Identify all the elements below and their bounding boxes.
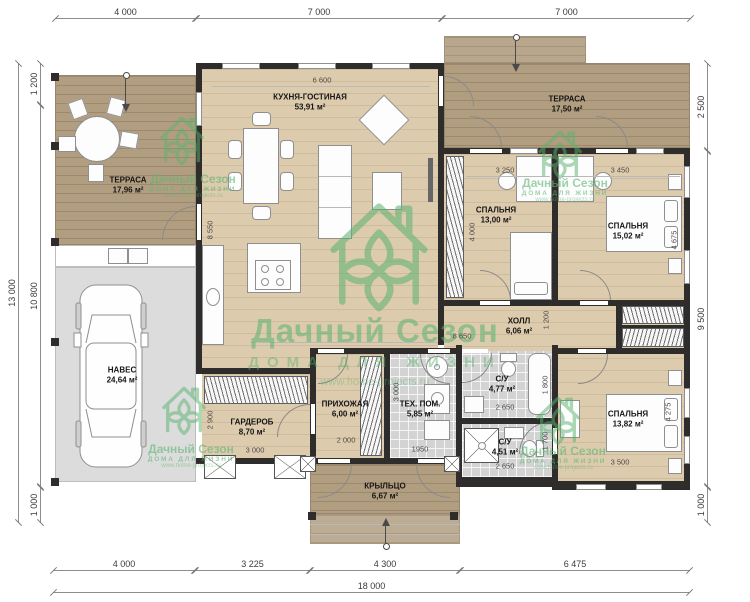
door-opening	[318, 349, 344, 353]
tv	[428, 158, 433, 202]
window	[684, 250, 690, 284]
entry-arrow-icon	[512, 64, 520, 72]
dim-line	[562, 176, 680, 177]
room-area: 15,02 м²	[608, 232, 648, 242]
dim-bottom-total: 18 000	[53, 592, 690, 593]
tech-cabinet	[424, 420, 450, 440]
window	[372, 63, 410, 69]
window	[684, 436, 690, 464]
desk	[558, 156, 594, 202]
entry-marker	[383, 543, 390, 550]
dim-bottom-2: 3 225	[195, 570, 310, 571]
pillow	[664, 425, 678, 448]
room-area: 5,85 м²	[400, 410, 441, 420]
dim-kitchen-left: 8 550	[206, 221, 215, 240]
door-opening	[480, 301, 510, 305]
terrace-chair	[58, 136, 76, 152]
room-name: КРЫЛЬЦО	[364, 482, 405, 492]
desk-chair	[594, 172, 612, 190]
room-area: 13,82 м²	[608, 420, 648, 430]
terrace-chair	[119, 131, 140, 150]
nightstand	[668, 258, 682, 274]
dim-bed2-h: 4 675	[670, 231, 679, 250]
room-label-porch: КРЫЛЬЦО 6,67 м²	[364, 482, 405, 503]
door-opening	[580, 301, 608, 305]
room-name: ПРИХОЖАЯ	[322, 400, 369, 410]
bench	[128, 248, 148, 264]
room-label-carport: НАВЕС 24,64 м²	[107, 366, 138, 387]
room-name: ТЕХ. ПОМ.	[400, 400, 441, 410]
wall	[456, 477, 552, 487]
stove	[255, 260, 291, 290]
column	[444, 456, 460, 472]
dim-right-1: 2 500	[707, 63, 708, 151]
entry-arrow-line	[385, 525, 386, 543]
dim-hall-h: 1 200	[542, 311, 551, 330]
dim-bed2-w: 3 450	[611, 166, 630, 175]
room-name: КУХНЯ-ГОСТИНАЯ	[273, 93, 347, 103]
hall-closet	[622, 328, 684, 347]
wardrobe-rack	[204, 376, 308, 404]
sofa-cushion-line	[319, 176, 351, 177]
nightstand	[668, 458, 682, 474]
dim-bottom-1: 4 000	[53, 570, 195, 571]
window	[222, 63, 260, 69]
pillow	[514, 282, 548, 295]
dim-wc1-w: 2 650	[496, 403, 515, 412]
room-label-hallway: ПРИХОЖАЯ 6,00 м²	[322, 400, 369, 421]
dim-bed1-h: 4 000	[468, 223, 477, 242]
sofa	[318, 145, 352, 239]
room-name: С/У	[492, 438, 518, 448]
floor-plan-canvas: ТЕРРАСА 17,96 м² КУХНЯ-ГОСТИНАЯ 53,91 м²…	[0, 0, 750, 602]
terrace-chair	[88, 164, 104, 182]
dim-ward-w: 3 000	[246, 446, 265, 455]
dim-bed1-w: 3 250	[496, 166, 515, 175]
entry-arrow-icon	[122, 104, 130, 112]
dresser	[560, 400, 580, 438]
window	[684, 166, 690, 198]
dim-hall-w: 8 650	[453, 332, 472, 341]
burner	[261, 278, 269, 286]
door-opening	[578, 349, 606, 353]
dim-left-3: 1 000	[40, 487, 41, 523]
room-label-bathroom1: С/У 4,77 м²	[489, 375, 515, 396]
pillow	[664, 200, 678, 222]
post	[51, 238, 59, 246]
room-area: 53,91 м²	[273, 103, 347, 113]
dim-entry-w: 2 000	[337, 436, 356, 445]
room-name: СПАЛЬНЯ	[476, 206, 516, 216]
room-label-hall: ХОЛЛ 6,06 м²	[506, 317, 532, 338]
room-label-kitchen: КУХНЯ-ГОСТИНАЯ 53,91 м²	[273, 93, 347, 114]
low-window	[204, 455, 236, 479]
room-name: ТЕРРАСА	[109, 176, 146, 186]
room-label-bedroom2: СПАЛЬНЯ 15,02 м²	[608, 222, 648, 243]
door-opening	[470, 149, 502, 153]
dim-right-2: 9 500	[707, 151, 708, 487]
door-opening	[462, 349, 488, 353]
window	[636, 148, 664, 154]
dim-line	[250, 342, 450, 343]
room-name: СПАЛЬНЯ	[608, 410, 648, 420]
wall	[384, 354, 390, 464]
door-opening	[428, 349, 450, 353]
dim-line	[466, 176, 550, 177]
desk-chair	[498, 172, 516, 190]
room-label-bathroom2: С/У 4,51 м²	[492, 438, 518, 459]
dim-left-total: 13 000	[18, 63, 19, 523]
door-opening	[311, 404, 315, 434]
wall	[552, 348, 690, 354]
room-area: 4,77 м²	[489, 385, 515, 395]
dining-table	[243, 128, 279, 204]
post	[308, 512, 316, 520]
dim-wc2-h: 1 700	[541, 432, 550, 451]
wall	[552, 345, 558, 490]
burner	[276, 265, 284, 273]
room-label-bedroom3: СПАЛЬНЯ 13,82 м²	[608, 410, 648, 431]
room-label-wardrobe: ГАРДЕРОБ 8,70 м²	[231, 418, 274, 439]
window	[510, 148, 538, 154]
kitchen-sink	[206, 288, 220, 306]
room-label-terrace-left: ТЕРРАСА 17,96 м²	[109, 176, 146, 197]
column	[300, 456, 316, 472]
dining-chair	[252, 206, 271, 220]
dining-chair	[252, 112, 271, 126]
dim-left-1: 1 200	[40, 63, 41, 105]
dim-top-1: 4 000	[55, 18, 196, 19]
room-area: 6,00 м²	[322, 410, 369, 420]
room-name: С/У	[489, 375, 515, 385]
burner	[276, 278, 284, 286]
dim-line	[212, 86, 430, 87]
dim-bed3-h: 4 275	[664, 403, 673, 422]
desk	[516, 156, 552, 202]
nightstand	[668, 370, 682, 386]
hall-closet	[622, 306, 684, 324]
dim-wc1-h: 1 800	[541, 376, 550, 395]
room-name: ТЕРРАСА	[548, 95, 585, 105]
room-area: 6,67 м²	[364, 492, 405, 502]
post	[51, 478, 59, 486]
dim-ward-h: 2 900	[206, 411, 215, 430]
dim-tech-w: 1950	[412, 445, 429, 454]
dim-bed3-w: 3 500	[611, 458, 630, 467]
entry-arrow-line	[515, 41, 516, 65]
entry-marker	[123, 72, 130, 79]
window	[196, 92, 202, 126]
dim-top-2: 7 000	[196, 18, 442, 19]
room-name: СПАЛЬНЯ	[608, 222, 648, 232]
room-name: ХОЛЛ	[506, 317, 532, 327]
sofa-cushion-line	[319, 207, 351, 208]
dining-chair	[228, 172, 242, 191]
room-label-terrace-top: ТЕРРАСА 17,50 м²	[548, 95, 585, 116]
room-area: 17,96 м²	[109, 186, 146, 196]
wall	[196, 368, 316, 374]
dim-left-2: 10 800	[40, 105, 41, 487]
dining-chair	[280, 172, 294, 191]
dim-wc2-w: 2 650	[496, 462, 515, 471]
window	[298, 63, 336, 69]
wall	[552, 481, 690, 490]
coffee-table	[372, 172, 402, 210]
window	[636, 484, 662, 490]
room-label-bedroom1: СПАЛЬНЯ 13,00 м²	[476, 206, 516, 227]
door-opening	[553, 428, 557, 454]
room-name: НАВЕС	[107, 366, 138, 376]
burner	[261, 265, 269, 273]
room-area: 8,70 м²	[231, 428, 274, 438]
entry-arrow-line	[125, 79, 126, 105]
entry-arrow-icon	[382, 518, 390, 526]
door-opening	[596, 149, 628, 153]
dim-bottom-3: 4 300	[310, 570, 460, 571]
door-opening	[197, 204, 201, 240]
dining-chair	[228, 140, 242, 159]
dim-bottom-4: 6 475	[460, 570, 690, 571]
post	[51, 73, 59, 81]
dim-right-3: 1 000	[707, 487, 708, 523]
dining-chair	[280, 140, 294, 159]
sink	[464, 396, 484, 413]
door-opening	[439, 76, 443, 106]
room-name: ГАРДЕРОБ	[231, 418, 274, 428]
post	[51, 142, 59, 150]
window	[576, 484, 606, 490]
window	[684, 388, 690, 418]
bench	[108, 248, 128, 264]
room-area: 4,51 м²	[492, 448, 518, 458]
room-area: 6,06 м²	[506, 327, 532, 337]
entry-marker	[513, 34, 520, 41]
terrace-table	[74, 116, 120, 162]
room-area: 24,64 м²	[107, 376, 138, 386]
room-area: 17,50 м²	[548, 105, 585, 115]
dim-top-3: 7 000	[442, 18, 691, 19]
dim-tech-h: 3 000	[392, 383, 401, 402]
post	[51, 338, 59, 346]
wall	[456, 418, 552, 424]
wardrobe-closet	[446, 156, 464, 298]
dim-kitchen-top: 6 600	[313, 76, 332, 85]
wall	[552, 148, 558, 306]
room-label-tech: ТЕХ. ПОМ. 5,85 м²	[400, 400, 441, 421]
wall	[616, 325, 684, 328]
shower-drain	[478, 442, 486, 450]
post	[450, 512, 458, 520]
room-area: 13,00 м²	[476, 216, 516, 226]
door-opening	[318, 459, 350, 463]
